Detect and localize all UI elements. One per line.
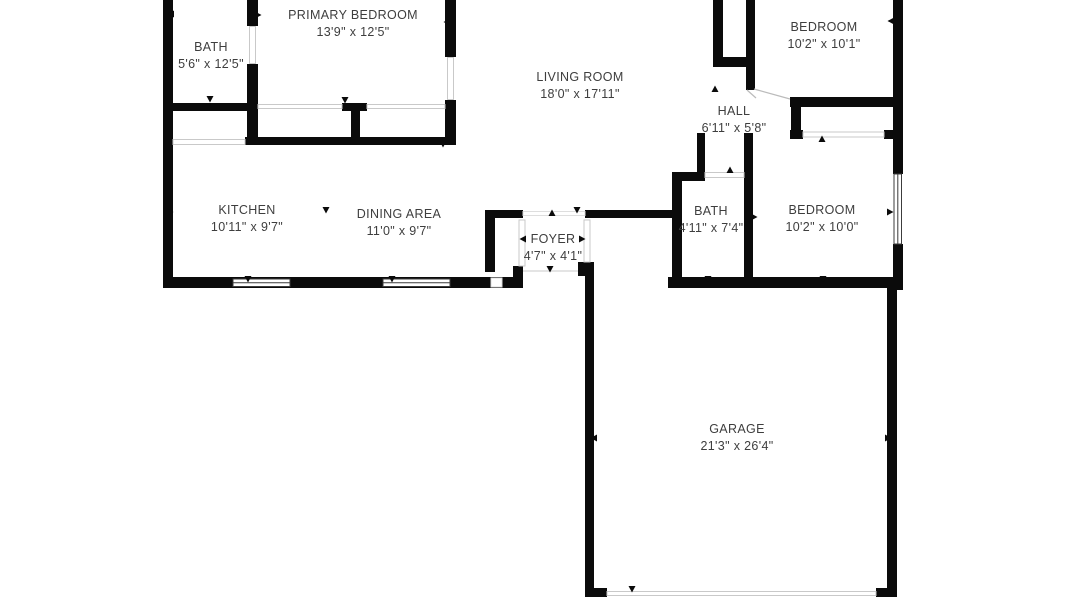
- room-dims: 10'11" x 9'7": [211, 219, 283, 236]
- wall-hall-left-upper: [713, 0, 723, 57]
- wall-foyer-left: [485, 210, 495, 272]
- room-name: LIVING ROOM: [536, 69, 623, 86]
- wall-bedroom-top-left: [746, 0, 755, 57]
- room-name: KITCHEN: [218, 202, 275, 219]
- room-dims: 4'11" x 7'4": [679, 220, 744, 237]
- door-swing-bedroom-top-2: [747, 90, 756, 98]
- opening-bath2-door: [705, 173, 744, 178]
- room-label-primary-bedroom: PRIMARY BEDROOM 13'9" x 12'5": [288, 7, 418, 40]
- opening-closet-sliver: [491, 278, 502, 287]
- door-swing-lines: [747, 89, 790, 99]
- wall-hall-jog-lower: [697, 133, 705, 173]
- floor-plan-page: BATH 5'6" x 12'5" PRIMARY BEDROOM 13'9" …: [0, 0, 1067, 600]
- room-name: HALL: [718, 103, 751, 120]
- wall-left-outer: [163, 0, 173, 288]
- room-dims: 5'6" x 12'5": [178, 56, 244, 73]
- room-name: BEDROOM: [790, 19, 857, 36]
- wall-primary-right-upper: [445, 0, 456, 57]
- room-label-garage: GARAGE 21'3" x 26'4": [700, 421, 773, 454]
- room-name: BATH: [194, 39, 228, 56]
- room-label-dining-area: DINING AREA 11'0" x 9'7": [357, 206, 441, 239]
- opening-bedroom2-entry: [803, 132, 884, 137]
- wall-bath1-bottom: [163, 103, 257, 111]
- wall-garage-bottom-right-stub: [876, 588, 897, 597]
- room-dims: 13'9" x 12'5": [316, 24, 389, 41]
- opening-kitchen-pass: [173, 140, 245, 145]
- opening-garage-door: [607, 592, 876, 596]
- wall-closet-bottom: [245, 137, 456, 145]
- wall-garage-left: [585, 262, 594, 597]
- wall-right-outer-upper: [893, 0, 903, 174]
- wall-garage-top: [668, 277, 897, 288]
- room-label-bedroom-right: BEDROOM 10'2" x 10'0": [785, 202, 858, 235]
- wall-bath2-right: [744, 133, 753, 285]
- opening-closet-left: [258, 105, 342, 109]
- room-dims: 11'0" x 9'7": [367, 223, 432, 240]
- wall-kitchen-dining-bottom: [163, 277, 523, 288]
- room-dims: 10'2" x 10'0": [785, 219, 858, 236]
- opening-bath1-door: [250, 27, 256, 64]
- room-name: BATH: [694, 203, 728, 220]
- walls: [163, 0, 903, 597]
- room-label-foyer: FOYER 4'7" x 4'1": [524, 231, 583, 264]
- room-dims: 6'11" x 5'8": [702, 120, 767, 137]
- room-label-hall: HALL 6'11" x 5'8": [702, 103, 767, 136]
- room-dims: 4'7" x 4'1": [524, 248, 583, 265]
- room-label-bath-1: BATH 5'6" x 12'5": [178, 39, 244, 72]
- opening-foyer-right: [584, 220, 590, 262]
- room-label-living-room: LIVING ROOM 18'0" x 17'11": [536, 69, 623, 102]
- wall-hall-jog: [713, 57, 755, 67]
- room-label-bedroom-top: BEDROOM 10'2" x 10'1": [787, 19, 860, 52]
- wall-right-outer-mid: [893, 244, 903, 290]
- opening-closet-right: [367, 105, 445, 109]
- room-name: GARAGE: [709, 421, 765, 438]
- room-name: PRIMARY BEDROOM: [288, 7, 418, 24]
- room-label-bath-2: BATH 4'11" x 7'4": [679, 203, 744, 236]
- wall-bedroom2-nub-left: [790, 130, 803, 139]
- wall-closet-tee: [342, 103, 367, 111]
- wall-foyer-bottom-nub: [513, 266, 523, 288]
- room-dims: 18'0" x 17'11": [540, 86, 619, 103]
- room-dims: 10'2" x 10'1": [787, 36, 860, 53]
- wall-garage-right: [887, 288, 897, 597]
- wall-hall-right-stub: [746, 67, 755, 90]
- wall-garage-bottom-left-stub: [585, 588, 607, 597]
- floor-plan-drawing: [0, 0, 1067, 600]
- room-name: FOYER: [531, 231, 576, 248]
- door-openings: [173, 27, 884, 596]
- wall-closet-divider: [351, 111, 360, 137]
- room-label-kitchen: KITCHEN 10'11" x 9'7": [211, 202, 283, 235]
- room-name: BEDROOM: [788, 202, 855, 219]
- room-name: DINING AREA: [357, 206, 441, 223]
- room-dims: 21'3" x 26'4": [700, 438, 773, 455]
- opening-primary-door: [448, 58, 454, 100]
- wall-foyer-top-right: [585, 210, 673, 218]
- door-swing-bedroom-top: [754, 89, 790, 99]
- wall-bedroom-top-bottom: [790, 97, 897, 107]
